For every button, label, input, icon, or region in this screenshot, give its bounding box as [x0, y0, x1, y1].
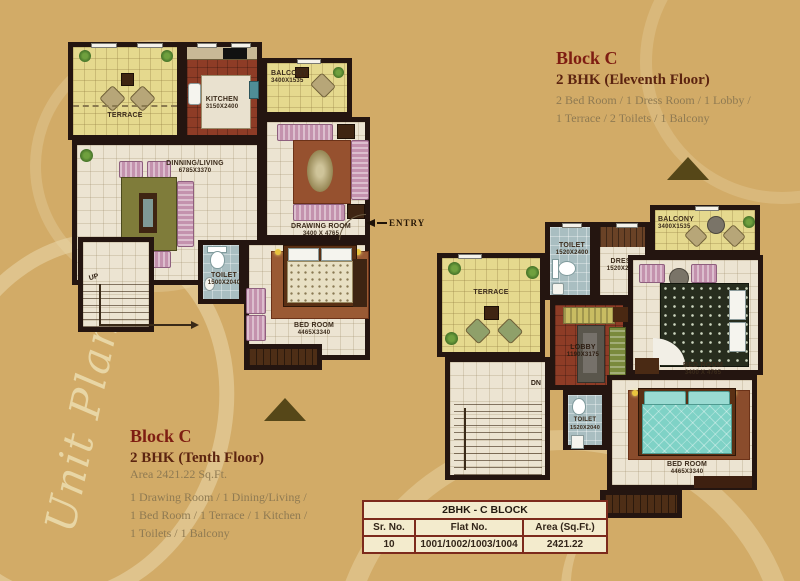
plant-icon	[526, 266, 539, 279]
room-label-balcony: BALCONY 3400X1535	[271, 69, 321, 86]
hall-chair	[246, 315, 266, 341]
stairs-down: DN	[445, 357, 550, 480]
terrace-chair	[497, 318, 524, 345]
col-header-flat-no: Flat No.	[415, 519, 523, 536]
table-header-row: Sr. No. Flat No. Area (Sq.Ft.)	[363, 519, 607, 536]
terrace-table	[121, 73, 134, 86]
bench	[563, 307, 615, 324]
dining-bench	[177, 181, 194, 247]
dresser	[635, 358, 659, 374]
wardrobe	[600, 227, 645, 247]
room-label-bedroom: BED ROOM 4465X3340	[279, 321, 349, 338]
stove-icon	[223, 48, 247, 59]
up-label: UP	[88, 273, 99, 282]
wardrobe	[353, 259, 367, 307]
room-label-drawing: DRAWING ROOM 3400 X 4765	[281, 222, 361, 239]
sofa	[293, 204, 345, 221]
entry-arrow-tail	[377, 222, 387, 224]
wood-deck	[244, 344, 322, 370]
window-mark	[616, 223, 638, 228]
floor-description-line: 1 Bed Room / 1 Terrace / 1 Kitchen /	[130, 506, 360, 524]
stair-arrow-line	[99, 284, 101, 326]
room-label-toilet1: TOILET 1520X2400	[550, 241, 594, 258]
hall-chair	[246, 288, 266, 314]
window-mark	[231, 43, 251, 48]
plant-icon	[448, 262, 461, 275]
room-balcony-eleventh: BALCONY 3400X1535	[650, 205, 760, 255]
dresser	[694, 476, 752, 488]
pillow	[288, 248, 319, 261]
room-label-terrace2: TERRACE	[456, 288, 526, 297]
dn-label: DN	[531, 380, 541, 387]
terrace-dash-line	[73, 105, 177, 107]
stair-treads	[454, 404, 542, 476]
room-toilet-eleventh: TOILET 1520X2400	[545, 222, 595, 300]
room-label-toilet: TOILET 1500X2040	[203, 271, 245, 288]
plant-icon	[80, 149, 93, 162]
basin-icon	[552, 283, 564, 295]
window-mark	[562, 223, 582, 228]
plant-icon	[743, 216, 755, 228]
area-line: Area 2421.22 Sq.Ft.	[130, 467, 360, 482]
duvet	[642, 404, 732, 454]
col-header-area: Area (Sq.Ft.)	[523, 519, 607, 536]
col-header-sr-no: Sr. No.	[363, 519, 415, 536]
room-terrace: TERRACE	[68, 42, 182, 140]
flat-details-table: 2BHK - C BLOCK Sr. No. Flat No. Area (Sq…	[362, 500, 608, 554]
floor-description-line: 1 Toilets / 1 Balcony	[130, 524, 360, 542]
entry-label: ENTRY	[389, 218, 425, 228]
stair-arrow-head	[191, 321, 199, 329]
wood-deck	[600, 490, 682, 518]
terrace-chair	[99, 85, 126, 112]
room-bedroom2-eleventh: BED ROOM 4465X3340	[607, 375, 757, 490]
stair-arrow-line	[99, 324, 191, 326]
window-mark	[458, 254, 482, 259]
room-toilet2-eleventh: TOILET 1520X2040	[563, 390, 607, 450]
terrace-table	[484, 306, 499, 320]
duvet	[287, 261, 353, 303]
rug-oval	[307, 150, 333, 192]
plant-icon	[161, 50, 173, 62]
room-label-kitchen: KITCHEN 3150X2400	[192, 95, 252, 112]
floor-title: 2 BHK (Tenth Floor)	[130, 450, 360, 467]
block-title: Block C	[130, 426, 360, 447]
sofa	[351, 140, 369, 200]
room-label-dining: DINNING/LIVING 6785X3370	[135, 159, 255, 176]
block-title: Block C	[556, 48, 786, 69]
sofa	[277, 124, 333, 141]
table-data-row: 10 1001/1002/1003/1004 2421.22	[363, 536, 607, 553]
room-balcony: BALCONY 3400X1535	[262, 58, 352, 117]
floor-description-line: 2 Bed Room / 1 Dress Room / 1 Lobby /	[556, 91, 786, 109]
wc-icon	[558, 261, 576, 276]
chair	[691, 264, 717, 283]
wc-icon	[210, 251, 225, 269]
room-label-bedroom2: BED ROOM 4465X3340	[650, 460, 724, 477]
north-triangle-tenth	[264, 398, 306, 421]
window-mark	[695, 206, 719, 211]
stair-arrow-line	[464, 408, 466, 470]
room-terrace-eleventh: TERRACE	[437, 253, 545, 357]
balcony-chair	[722, 224, 746, 248]
cell-area: 2421.22	[523, 536, 607, 553]
pillow	[321, 248, 352, 261]
pillow	[729, 290, 746, 320]
plant-icon	[445, 332, 458, 345]
basin-icon	[571, 435, 584, 449]
side-table	[337, 124, 355, 139]
table-title-row: 2BHK - C BLOCK	[363, 501, 607, 519]
unit-plan-page: Unit Plan TERRACE KITCHE	[0, 0, 800, 581]
sofa-green	[609, 327, 626, 381]
entry-indicator: ENTRY	[366, 218, 425, 228]
room-label-lobby: LOBBY 1190X3175	[561, 343, 605, 360]
floor-description-line: 1 Terrace / 2 Toilets / 1 Balcony	[556, 109, 786, 127]
room-label-terrace: TERRACE	[85, 111, 165, 120]
dining-table-center	[143, 199, 153, 227]
north-triangle-eleventh	[667, 157, 709, 180]
plant-icon	[79, 50, 91, 62]
room-kitchen: KITCHEN 3150X2400	[182, 42, 262, 140]
table-title: 2BHK - C BLOCK	[363, 501, 607, 519]
room-label-toilet2: TOILET 1520X2040	[569, 417, 601, 432]
stairs-up: UP	[78, 237, 154, 332]
room-label-balcony2: BALCONY 3400X1535	[658, 215, 710, 232]
room-drawing: DRAWING ROOM 3400 X 4765	[262, 117, 370, 240]
info-tenth-floor: Block C 2 BHK (Tenth Floor) Area 2421.22…	[130, 426, 360, 542]
pillow	[729, 322, 746, 352]
window-mark	[197, 43, 217, 48]
wc-icon	[572, 398, 586, 415]
window-mark	[91, 43, 117, 48]
terrace-chair	[129, 85, 156, 112]
stair-treads	[83, 284, 149, 327]
info-eleventh-floor: Block C 2 BHK (Eleventh Floor) 2 Bed Roo…	[556, 48, 786, 127]
room-bedroom1-eleventh: BED ROOM 3400 X 4765	[628, 255, 763, 375]
terrace-chair	[465, 318, 492, 345]
window-mark	[297, 59, 321, 64]
wall-lamp	[275, 249, 281, 255]
room-toilet-tenth: TOILET 1500X2040	[198, 240, 244, 304]
plant-icon	[333, 67, 344, 78]
side-table	[613, 307, 628, 322]
cell-sr-no: 10	[363, 536, 415, 553]
floor-description-line: 1 Drawing Room / 1 Dining/Living /	[130, 488, 360, 506]
entry-arrow-icon	[366, 219, 375, 227]
chair	[639, 264, 665, 283]
cell-flat-no: 1001/1002/1003/1004	[415, 536, 523, 553]
window-mark	[137, 43, 163, 48]
floor-title: 2 BHK (Eleventh Floor)	[556, 72, 786, 89]
